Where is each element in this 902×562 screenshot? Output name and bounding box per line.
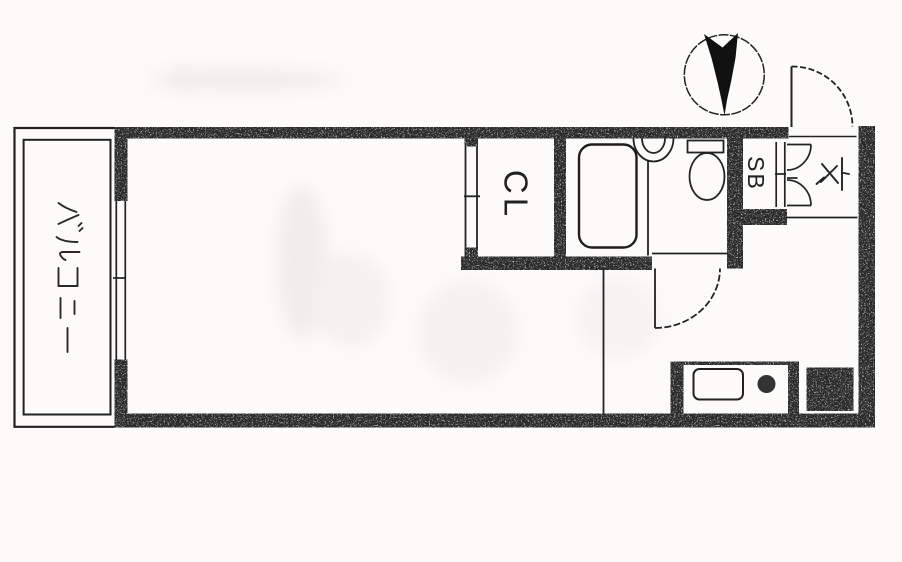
svg-text:CL: CL xyxy=(498,170,535,220)
svg-text:SB: SB xyxy=(743,156,769,191)
